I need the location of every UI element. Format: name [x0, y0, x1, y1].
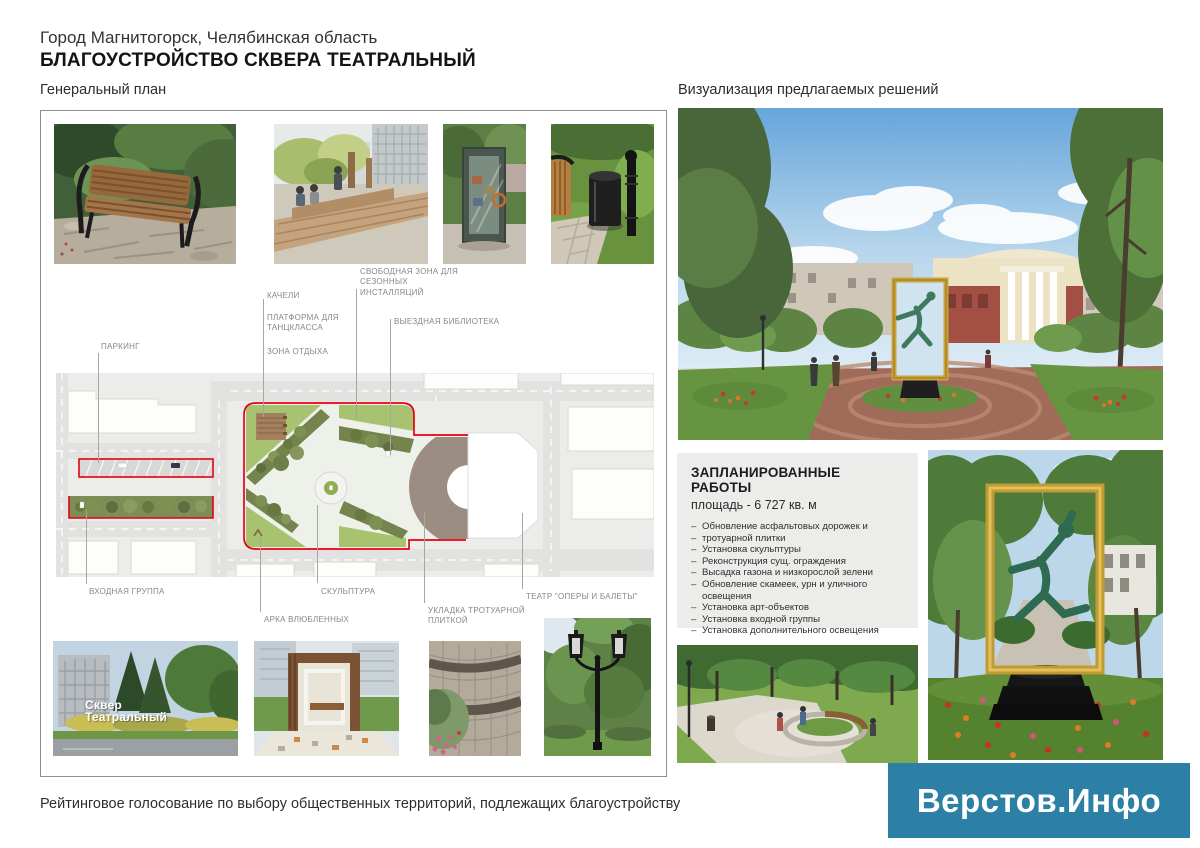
plan-label-rest: ЗОНА ОТДЫХА [267, 347, 328, 357]
photo-paving-tiles [429, 641, 521, 756]
plan-label-arch: АРКА ВЛЮБЛЕННЫХ [264, 615, 349, 625]
plan-label-entrance: ВХОДНАЯ ГРУППА [89, 587, 165, 597]
plan-label-platform: ПЛАТФОРМА ДЛЯ ТАНЦКЛАССА [267, 313, 347, 334]
photo-visualization-main [678, 108, 1163, 440]
entrance-sign-text: Сквер Театральный [85, 699, 167, 723]
poster: Город Магнитогорск, Челябинская область … [0, 0, 1200, 848]
photo-bench [54, 124, 236, 264]
leader-theater [522, 513, 523, 589]
works-item: Обновление асфальтовых дорожек и [691, 521, 904, 533]
leader-library [390, 319, 391, 455]
leader-paving [424, 513, 425, 603]
genplan-panel: ПАРКИНГ КАЧЕЛИ ПЛАТФОРМА ДЛЯ ТАНЦКЛАССА … [40, 110, 667, 777]
viz-heading: Визуализация предлагаемых решений [678, 82, 938, 98]
works-item: Установка арт-объектов [691, 602, 904, 614]
page-subtitle: Город Магнитогорск, Челябинская область [40, 28, 377, 48]
works-subtitle: площадь - 6 727 кв. м [691, 498, 904, 512]
works-item: Установка дополнительного освещения [691, 625, 904, 637]
works-item: тротуарной плитки [691, 533, 904, 545]
leader-arch [260, 537, 261, 612]
plan-label-parking: ПАРКИНГ [101, 342, 140, 352]
plan-label-theater: ТЕАТР "ОПЕРЫ И БАЛЕТЫ" [526, 592, 638, 602]
photo-street-lamp [544, 618, 651, 756]
page-title: БЛАГОУСТРОЙСТВО СКВЕРА ТЕАТРАЛЬНЫЙ [40, 50, 476, 72]
works-list: Обновление асфальтовых дорожек и тротуар… [691, 521, 904, 637]
plan-label-paving: УКЛАДКА ТРОТУАРНОЙ ПЛИТКОЙ [428, 606, 532, 627]
photo-boardwalk [274, 124, 428, 264]
leader-swings-platform-rest [263, 299, 264, 417]
leader-free-zone [356, 289, 357, 419]
photo-statue [928, 450, 1163, 760]
works-panel: ЗАПЛАНИРОВАННЫЕ РАБОТЫ площадь - 6 727 к… [677, 453, 918, 628]
works-item: Установка скульптуры [691, 544, 904, 556]
plan-label-swings: КАЧЕЛИ [267, 291, 300, 301]
works-item: Реконструкция сущ. ограждения [691, 556, 904, 568]
works-item: Высадка газона и низкорослой зелени [691, 567, 904, 579]
photo-lovers-arch [254, 641, 399, 756]
photo-render-bench-circle [677, 645, 918, 763]
photo-entrance-sign: Сквер Театральный [53, 641, 238, 756]
plan-label-sculpture: СКУЛЬПТУРА [321, 587, 375, 597]
footer-caption: Рейтинговое голосование по выбору общест… [40, 796, 680, 812]
logo-verstov-info: Верстов.Инфо [888, 763, 1190, 838]
plan-label-library: ВЫЕЗДНАЯ БИБЛИОТЕКА [394, 317, 499, 327]
leader-sculpture [317, 505, 318, 583]
leader-entrance [86, 509, 87, 584]
works-title: ЗАПЛАНИРОВАННЫЕ РАБОТЫ [691, 465, 904, 495]
genplan-heading: Генеральный план [40, 82, 166, 98]
works-item: Обновление скамеек, урн и уличного освещ… [691, 579, 904, 602]
photo-trash-bin [551, 124, 654, 264]
works-item: Установка входной группы [691, 614, 904, 626]
plan-label-free-zone: СВОБОДНАЯ ЗОНА ДЛЯ СЕЗОННЫХ ИНСТАЛЛЯЦИЙ [360, 267, 472, 298]
logo-text: Верстов.Инфо [917, 782, 1161, 820]
site-plan [56, 373, 654, 577]
leader-parking [98, 353, 99, 463]
photo-street-library [443, 124, 526, 264]
